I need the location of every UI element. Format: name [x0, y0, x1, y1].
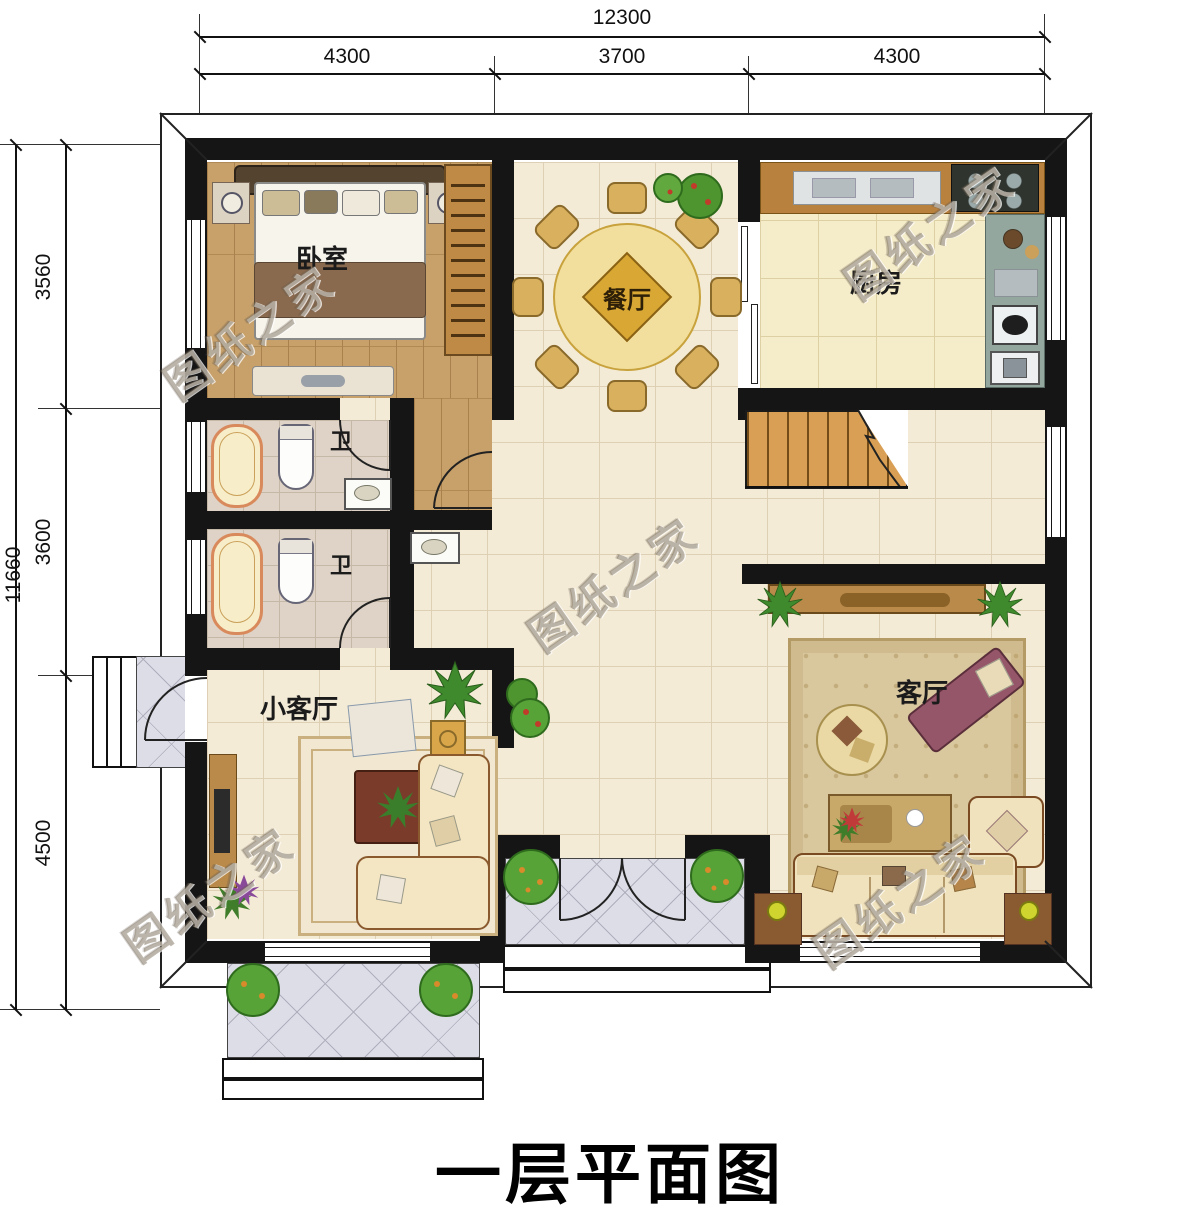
- terrace-bush-icon: [420, 964, 472, 1016]
- entry-door-arc-left: [560, 858, 622, 920]
- bath-lower-label: 卫: [324, 550, 358, 578]
- entry-bush-icon: [691, 850, 743, 902]
- small-living-label: 小客厅: [228, 690, 370, 724]
- entry-door-arc-right: [622, 858, 685, 920]
- bedroom-door-arc: [434, 452, 492, 508]
- eave-corner-line: [160, 113, 207, 160]
- eave-corner-line: [1045, 113, 1092, 160]
- entry-bush-icon: [504, 850, 558, 904]
- floor-plan-canvas: 12300 4300 3700 4300 11660 3560 3600 450…: [0, 0, 1200, 1228]
- eave-corner-line: [1045, 941, 1092, 988]
- hall-plant-icon: [427, 662, 483, 718]
- dining-plant-icon: [654, 174, 722, 218]
- hall-plant-icon: [507, 679, 549, 737]
- bath-lower-door-arc: [340, 598, 390, 648]
- bath-upper-label: 卫: [324, 426, 358, 454]
- plan-title: 一层平面图: [290, 1126, 930, 1212]
- terrace-bush-icon: [227, 964, 279, 1016]
- dining-label: 餐厅: [585, 281, 669, 313]
- console-plant-icon: [978, 582, 1023, 627]
- console-plant-icon: [758, 582, 803, 627]
- living-label: 客厅: [876, 674, 968, 708]
- side-door-arc: [145, 678, 207, 740]
- table-plant-icon: [377, 786, 419, 828]
